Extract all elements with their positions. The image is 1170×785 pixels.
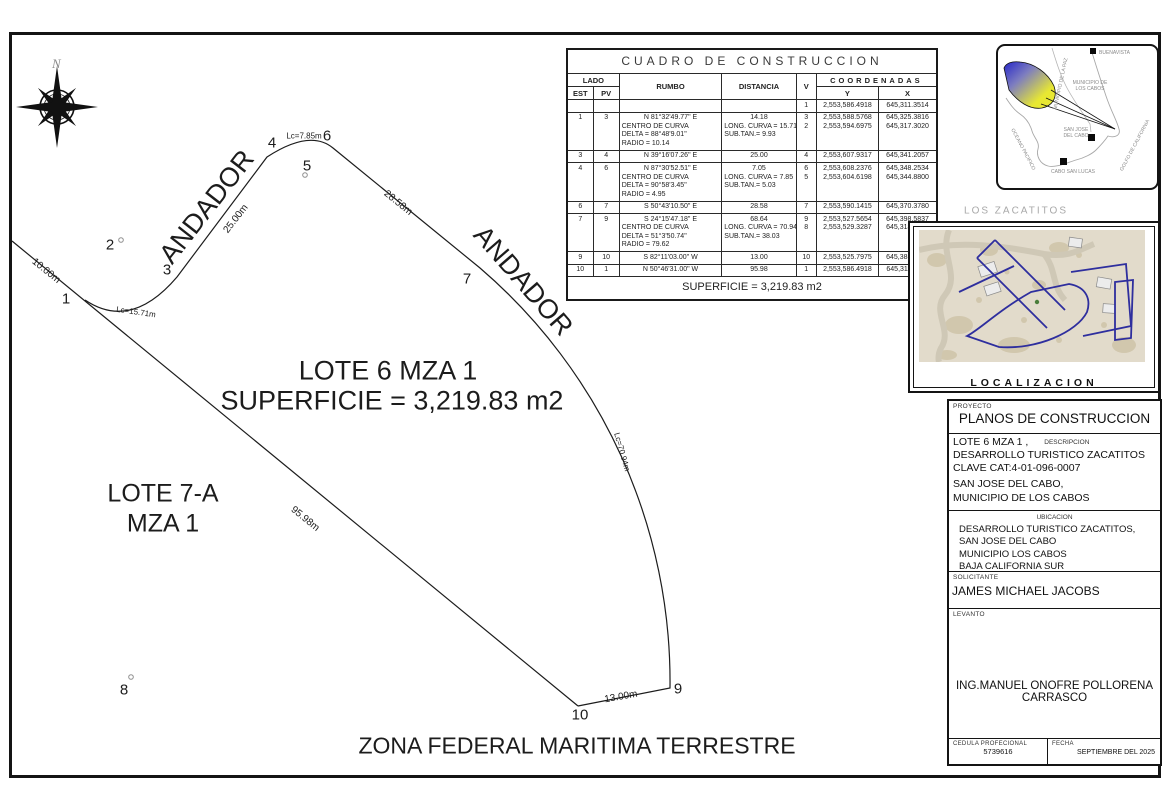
- table-cell: 6: [593, 163, 619, 201]
- table-cell: S 50°43'10.50" E: [619, 201, 722, 214]
- vertex-6: 6: [323, 128, 331, 145]
- vertex-2: 2: [106, 237, 114, 254]
- neighbor-lot-label: LOTE 7-A: [107, 480, 218, 509]
- table-cell: 645,341.2057: [879, 150, 937, 163]
- levanto-value: ING.MANUEL ONOFRE POLLORENA CARRASCO: [949, 680, 1160, 704]
- descripcion-line4: SAN JOSE DEL CABO,: [953, 478, 1156, 491]
- construction-table: CUADRO DE CONSTRUCCION LADO RUMBO DISTAN…: [566, 48, 938, 301]
- sat-green-dot: [1035, 300, 1039, 304]
- col-x: X: [879, 87, 937, 100]
- table-row: 79S 24°15'47.18" ECENTRO DE CURVADELTA =…: [567, 214, 937, 252]
- table-row: 101N 50°46'31.00" W95.9812,553,586.49186…: [567, 264, 937, 277]
- table-cell: 14.18LONG. CURVA = 15.71SUB.TAN.= 9.93: [722, 112, 796, 150]
- descripcion-line1: LOTE 6 MZA 1 ,: [953, 436, 1028, 449]
- table-cell: 2,553,586.4918: [816, 100, 878, 113]
- col-lado: LADO: [567, 74, 619, 87]
- cedula-label: CEDULA PROFECIONAL: [949, 739, 1047, 747]
- table-cell: 98: [796, 214, 816, 252]
- table-cell: 1: [593, 264, 619, 277]
- descripcion-line5: MUNICIPIO DE LOS CABOS: [953, 492, 1156, 505]
- title-block: PROYECTO PLANOS DE CONSTRUCCION LOTE 6 M…: [947, 399, 1162, 766]
- cedula-value: 5739616: [949, 747, 1047, 756]
- col-est: EST: [567, 87, 593, 100]
- table-cell: 7: [593, 201, 619, 214]
- label-oceano-pacifico: OCEANO PACIFICO: [1009, 128, 1036, 172]
- table-cell: N 87°30'52.51" ECENTRO DE CURVADELTA = 9…: [619, 163, 722, 201]
- table-cell: 13.00: [722, 252, 796, 265]
- solicitante-value: JAMES MICHAEL JACOBS: [949, 581, 1160, 598]
- table-row: 13N 81°32'49.77" ECENTRO DE CURVADELTA =…: [567, 112, 937, 150]
- cedula-cell: CEDULA PROFECIONAL 5739616: [949, 739, 1048, 764]
- localization-caption: LOCALIZACION: [910, 377, 1158, 389]
- section-solicitante: SOLICITANTE JAMES MICHAEL JACOBS: [949, 572, 1160, 609]
- table-cell: 68.64LONG. CURVA = 70.94SUB.TAN.= 38.03: [722, 214, 796, 252]
- ubicacion-line2: SAN JOSE DEL CABO: [959, 536, 1160, 548]
- section-cedula-fecha: CEDULA PROFECIONAL 5739616 FECHA SEPTIEM…: [949, 739, 1160, 764]
- col-y: Y: [816, 87, 878, 100]
- table-cell: 95.98: [722, 264, 796, 277]
- table-cell: N 39°16'07.26" E: [619, 150, 722, 163]
- levanto-label: LEVANTO: [949, 609, 1160, 618]
- table-cell: 4: [593, 150, 619, 163]
- ubicacion-line3: MUNICIPIO LOS CABOS: [959, 549, 1160, 561]
- table-cell: 9: [593, 214, 619, 252]
- vertex-5: 5: [303, 158, 311, 175]
- table-cell: 28.58: [722, 201, 796, 214]
- table-cell: 4: [567, 163, 593, 201]
- vertex-8: 8: [120, 682, 128, 699]
- col-distancia: DISTANCIA: [722, 74, 796, 100]
- vertex-10: 10: [572, 707, 589, 724]
- table-cell: 7: [567, 214, 593, 252]
- site-flag-icon: [1004, 62, 1055, 109]
- table-cell: S 82°11'03.00" W: [619, 252, 722, 265]
- section-levanto: LEVANTO ING.MANUEL ONOFRE POLLORENA CARR…: [949, 609, 1160, 739]
- table-row: 46N 87°30'52.51" ECENTRO DE CURVADELTA =…: [567, 163, 937, 201]
- table-cell: 1: [567, 112, 593, 150]
- table-cell: 65: [796, 163, 816, 201]
- table-cell: 1: [796, 100, 816, 113]
- col-v: V: [796, 74, 816, 100]
- localization-box: LOCALIZACION: [908, 221, 1160, 393]
- table-cell: 2,553,527.56542,553,529.3287: [816, 214, 878, 252]
- region-map-svg: BUENAVISTA MUNICIPIO DE LOS CABOS SAN JO…: [998, 46, 1153, 184]
- table-cell: S 24°15'47.18" ECENTRO DE CURVADELTA = 5…: [619, 214, 722, 252]
- table-row: 67S 50°43'10.50" E28.5872,553,590.141564…: [567, 201, 937, 214]
- table-cell: 10: [796, 252, 816, 265]
- table-cell: 2,553,607.9317: [816, 150, 878, 163]
- table-cell: 32: [796, 112, 816, 150]
- table-cell: 2,553,588.57682,553,594.6975: [816, 112, 878, 150]
- fecha-cell: FECHA SEPTIEMBRE DEL 2025: [1048, 739, 1160, 764]
- table-cell: 645,325.3816645,317.3020: [879, 112, 937, 150]
- table-cell: 6: [567, 201, 593, 214]
- label-cabo-san-lucas: CABO SAN LUCAS: [1051, 169, 1096, 175]
- table-cell: 2,553,608.23762,553,604.6198: [816, 163, 878, 201]
- proyecto-value: PLANOS DE CONSTRUCCION: [949, 411, 1160, 426]
- proyecto-label: PROYECTO: [949, 401, 1160, 410]
- table-cell: [722, 100, 796, 113]
- construction-table-body: 12,553,586.4918645,311.351413N 81°32'49.…: [567, 100, 937, 277]
- section-ubicacion: UBICACION DESARROLLO TURISTICO ZACATITOS…: [949, 511, 1160, 572]
- table-cell: 2,553,525.7975: [816, 252, 878, 265]
- dim-lc7: Lc=7.85m: [286, 132, 321, 141]
- table-cell: 1: [796, 264, 816, 277]
- compass-icon: N: [16, 56, 98, 148]
- descripcion-line2: DESARROLLO TURISTICO ZACATITOS: [953, 449, 1156, 462]
- table-cell: N 81°32'49.77" ECENTRO DE CURVADELTA = 8…: [619, 112, 722, 150]
- section-proyecto: PROYECTO PLANOS DE CONSTRUCCION: [949, 401, 1160, 434]
- section-descripcion: LOTE 6 MZA 1 , DESCRIPCION DESARROLLO TU…: [949, 434, 1160, 511]
- boundary-line-10-1: [12, 241, 578, 706]
- table-cell: 2,553,590.1415: [816, 201, 878, 214]
- region-map-box: BUENAVISTA MUNICIPIO DE LOS CABOS SAN JO…: [996, 44, 1159, 190]
- table-cell: 10: [593, 252, 619, 265]
- north-letter: N: [51, 56, 62, 71]
- label-municipio-2: LOS CABOS: [1076, 86, 1106, 92]
- table-row: 12,553,586.4918645,311.3514: [567, 100, 937, 113]
- vertex-4: 4: [268, 135, 276, 152]
- localization-title: LOS ZACATITOS: [964, 206, 1068, 217]
- table-title: CUADRO DE CONSTRUCCION: [567, 49, 937, 74]
- table-cell: 7.05LONG. CURVA = 7.85SUB.TAN.= 5.03: [722, 163, 796, 201]
- table-cell: 645,370.3780: [879, 201, 937, 214]
- table-cell: 4: [796, 150, 816, 163]
- table-row: 910S 82°11'03.00" W13.00102,553,525.7975…: [567, 252, 937, 265]
- col-rumbo: RUMBO: [619, 74, 722, 100]
- descripcion-label: DESCRIPCION: [1044, 439, 1089, 446]
- plan-sheet: N LOTE 6 MZA 1 SUPERFICIE = 3,219.83 m2 …: [0, 0, 1170, 785]
- vertex-3: 3: [163, 262, 171, 279]
- vertex-9: 9: [674, 681, 682, 698]
- vertex-7: 7: [463, 271, 471, 288]
- label-municipio-la-paz: MUNICIPIO DE LA PAZ: [1053, 57, 1070, 110]
- fecha-label: FECHA: [1048, 739, 1160, 747]
- solicitante-label: SOLICITANTE: [949, 572, 1160, 581]
- satellite-map: [919, 230, 1145, 362]
- fecha-value: SEPTIEMBRE DEL 2025: [1077, 749, 1155, 756]
- label-buenavista: BUENAVISTA: [1099, 50, 1131, 56]
- lot-title: LOTE 6 MZA 1: [299, 356, 478, 387]
- curve-center-markers: [119, 173, 308, 680]
- lot-area: SUPERFICIE = 3,219.83 m2: [221, 386, 564, 417]
- table-cell: 3: [593, 112, 619, 150]
- table-cell: 10: [567, 264, 593, 277]
- table-cell: [619, 100, 722, 113]
- ubicacion-label: UBICACION: [949, 511, 1160, 521]
- table-cell: 7: [796, 201, 816, 214]
- table-cell: [593, 100, 619, 113]
- ubicacion-line1: DESARROLLO TURISTICO ZACATITOS,: [959, 524, 1160, 536]
- label-san-jose-2: DEL CABO: [1063, 133, 1088, 139]
- descripcion-line3: CLAVE CAT:4-01-096-0007: [953, 462, 1156, 475]
- table-cell: 25.00: [722, 150, 796, 163]
- table-cell: 3: [567, 150, 593, 163]
- table-cell: N 50°46'31.00" W: [619, 264, 722, 277]
- label-golfo-california: GOLFO DE CALIFORNIA: [1119, 118, 1151, 172]
- table-cell: 645,348.2534645,344.8800: [879, 163, 937, 201]
- col-pv: PV: [593, 87, 619, 100]
- vertex-1: 1: [62, 291, 70, 308]
- neighbor-mza-label: MZA 1: [127, 510, 199, 539]
- table-cell: 645,311.3514: [879, 100, 937, 113]
- table-cell: 2,553,586.4918: [816, 264, 878, 277]
- table-cell: 9: [567, 252, 593, 265]
- table-row: 34N 39°16'07.26" E25.0042,553,607.931764…: [567, 150, 937, 163]
- zofemat-label: ZONA FEDERAL MARITIMA TERRESTRE: [358, 733, 795, 760]
- table-footer-superficie: SUPERFICIE = 3,219.83 m2: [567, 277, 937, 300]
- table-cell: [567, 100, 593, 113]
- col-coordenadas: COORDENADAS: [816, 74, 937, 87]
